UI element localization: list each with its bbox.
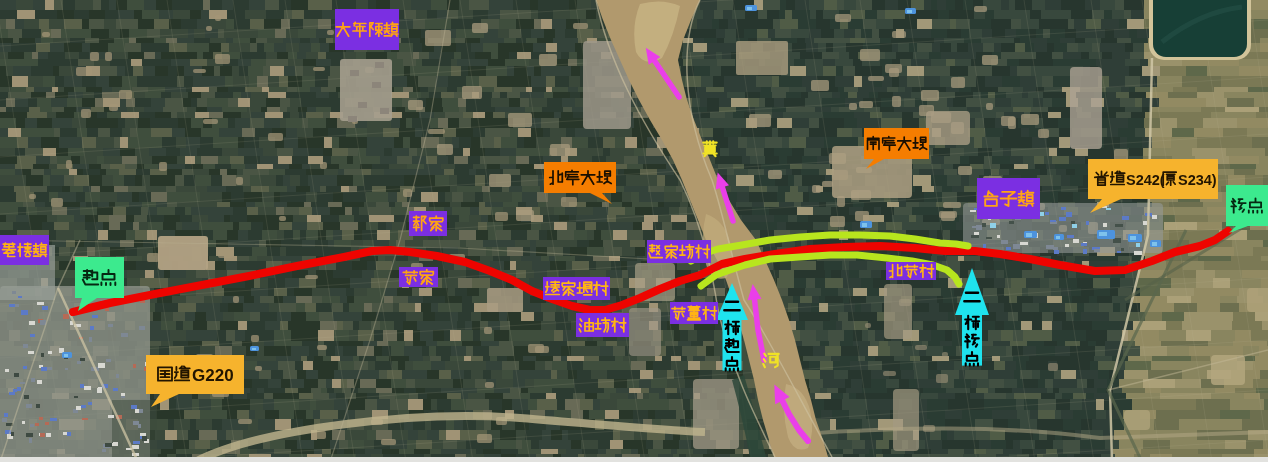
svg-text:S234): S234)	[1178, 172, 1217, 188]
svg-text:G220: G220	[192, 366, 234, 385]
svg-text:S242(: S242(	[1126, 172, 1165, 188]
